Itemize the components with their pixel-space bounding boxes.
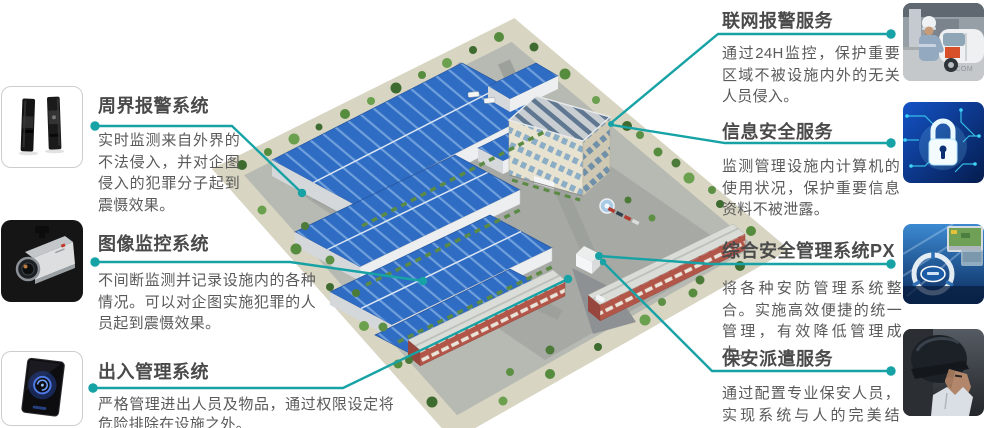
callout-perimeter-alarm: 周界报警系统 实时监测来自外界的不法侵入，并对企图侵入的犯罪分子起到震慑效果。 xyxy=(98,96,240,216)
service-title: 出入管理系统 xyxy=(98,362,394,383)
service-title: 综合安全管理系统PX xyxy=(722,241,902,262)
service-title: 信息安全服务 xyxy=(722,122,900,143)
cyber-lock-thumbnail xyxy=(903,102,984,183)
service-description: 通过24H监控，保护重要区域不被设施内外的无关人员侵入。 xyxy=(722,43,900,108)
cyber-lock-photo xyxy=(903,102,984,183)
service-description: 实时监测来自外界的不法侵入，并对企图侵入的犯罪分子起到震慑效果。 xyxy=(98,130,240,216)
callout-network-alarm: 联网报警服务 通过24H监控，保护重要区域不被设施内外的无关人员侵入。 xyxy=(722,11,900,108)
callout-info-security: 信息安全服务 监测管理设施内计算机的使用状况，保护重要信息资料不被泄露。 xyxy=(722,122,900,221)
security-solution-diagram: SECOM xyxy=(0,0,984,428)
callout-video-surveillance: 图像监控系统 不间断监测并记录设施内的各种情况。可以对企图实施犯罪的人员起到震慑… xyxy=(98,234,316,335)
cctv-camera-icon xyxy=(1,220,83,302)
access-reader-thumbnail xyxy=(1,351,83,426)
callout-guard-dispatch: 保安派遣服务 通过配置专业保安人员，实现系统与人的完美结合，从而保证设施安全的最… xyxy=(722,349,900,428)
guard-patrol-car-photo: SECOM xyxy=(903,3,984,81)
service-description: 不间断监测并记录设施内的各种情况。可以对企图实施犯罪的人员起到震慑效果。 xyxy=(98,270,316,335)
perimeter-sensors-thumbnail xyxy=(1,86,83,168)
callout-access-control: 出入管理系统 严格管理进出人员及物品，通过权限设定将危险排除在设施之外。 xyxy=(98,362,394,428)
guard-closeup-photo xyxy=(903,329,984,416)
service-title: 周界报警系统 xyxy=(98,96,240,117)
service-description: 严格管理进出人员及物品，通过权限设定将危险排除在设施之外。 xyxy=(98,395,394,428)
service-title: 图像监控系统 xyxy=(98,234,316,255)
guard-closeup-thumbnail xyxy=(903,329,984,416)
perimeter-sensors-icon xyxy=(2,87,82,167)
access-reader-icon xyxy=(2,352,82,425)
service-description: 监测管理设施内计算机的使用状况，保护重要信息资料不被泄露。 xyxy=(722,156,900,221)
guard-patrol-car-thumbnail: SECOM xyxy=(903,3,984,81)
callout-integrated-management: 综合安全管理系统PX 将各种安防管理系统整合。实施高效便捷的统一管理，有效降低管… xyxy=(722,241,902,364)
service-title: 联网报警服务 xyxy=(722,11,900,32)
px-system-thumbnail xyxy=(903,224,984,304)
service-description: 通过配置专业保安人员，实现系统与人的完美结合，从而保证设施安全的最大化。 xyxy=(722,383,900,428)
px-system-photo xyxy=(903,224,984,304)
service-title: 保安派遣服务 xyxy=(722,349,900,370)
cctv-camera-thumbnail xyxy=(1,220,83,302)
